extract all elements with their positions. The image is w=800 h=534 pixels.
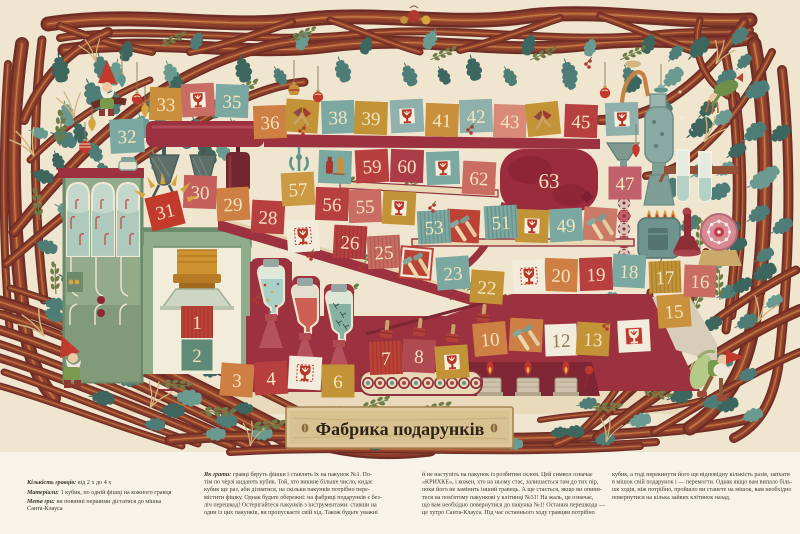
svg-text:33: 33 (156, 95, 176, 117)
svg-text:повернутися на кілька зайвих к: повернутися на кілька зайвих клітинок на… (612, 494, 731, 501)
svg-text:63: 63 (539, 169, 560, 193)
svg-text:це хутро Санта-Клауса. Під час: це хутро Санта-Клауса. Під час останньог… (422, 509, 595, 516)
svg-text:Мета гри: ви повинні першими д: Мета гри: ви повинні першими дістатися д… (26, 499, 161, 505)
svg-text:22: 22 (477, 277, 497, 299)
svg-text:містити фішку. Однак будьте об: містити фішку. Однак будьте обережні: на… (204, 494, 382, 501)
svg-text:56: 56 (322, 195, 342, 217)
svg-text:2: 2 (192, 346, 202, 367)
svg-text:23: 23 (443, 263, 463, 285)
svg-text:38: 38 (328, 108, 348, 130)
svg-text:13: 13 (583, 330, 603, 352)
svg-text:41: 41 (432, 111, 452, 133)
svg-text:6: 6 (333, 372, 343, 393)
svg-text:51: 51 (491, 213, 511, 235)
svg-text:39: 39 (361, 109, 381, 131)
svg-text:35: 35 (222, 92, 242, 114)
svg-text:4: 4 (266, 369, 277, 390)
svg-text:29: 29 (223, 195, 243, 217)
svg-text:16: 16 (690, 272, 710, 294)
svg-text:Матеріали: 1 кубик, по одній ф: Матеріали: 1 кубик, по одній фішці на ко… (26, 489, 172, 496)
svg-text:49: 49 (556, 216, 576, 238)
svg-text:8: 8 (414, 347, 425, 368)
svg-text:теся на пом'ятому пакункові у: теся на пом'ятому пакункові у клітинці №… (422, 495, 594, 501)
svg-text:17: 17 (655, 268, 675, 290)
svg-text:55: 55 (355, 197, 375, 219)
svg-text:Як грати: гравці беруть фішки: Як грати: гравці беруть фішки і ставлять… (203, 471, 372, 478)
svg-text:Фабрика подарунків: Фабрика подарунків (316, 419, 485, 439)
svg-text:кубик ще раз, аби дізнатися, н: кубик ще раз, аби дізнатися, на скільки … (204, 486, 370, 493)
svg-text:поки його не замінить інший гр: поки його не замінить інший гравець. А щ… (422, 486, 602, 493)
svg-text:45: 45 (571, 112, 591, 134)
svg-text:32: 32 (117, 127, 137, 149)
svg-text:що вам необхідно повернутися д: що вам необхідно повернутися до пакунка … (422, 501, 606, 508)
svg-text:тім по черзі кидають кубик. То: тім по черзі кидають кубик. Той, хто вик… (204, 479, 373, 486)
svg-text:18: 18 (619, 262, 639, 284)
svg-text:53: 53 (424, 218, 444, 240)
svg-text:ше ходів, ніж потрібно, пройшл: ше ходів, ніж потрібно, пройшло ви стане… (612, 486, 791, 493)
svg-text:25: 25 (374, 243, 394, 265)
svg-text:15: 15 (664, 301, 684, 323)
svg-text:3: 3 (231, 371, 242, 393)
svg-text:36: 36 (260, 113, 280, 135)
svg-text:«КРИХКЕ», і кожен, хто на ньом: «КРИХКЕ», і кожен, хто на ньому стає, за… (422, 480, 599, 486)
svg-text:57: 57 (288, 180, 308, 202)
svg-text:42: 42 (466, 107, 486, 129)
svg-text:12: 12 (551, 331, 571, 353)
svg-text:62: 62 (469, 169, 489, 191)
svg-text:й не наступіть на пакунок із р: й не наступіть на пакунок із розбитим ск… (422, 471, 593, 478)
svg-text:26: 26 (340, 233, 360, 255)
svg-text:10: 10 (480, 329, 501, 352)
svg-text:Кількість гравців: від 2 х до: Кількість гравців: від 2 х до 4 х (26, 480, 111, 486)
svg-text:ліч перешкод! Остерігайтеся па: ліч перешкод! Остерігайтеся пакунків з і… (204, 501, 377, 508)
svg-text:20: 20 (551, 266, 571, 288)
svg-text:60: 60 (397, 157, 417, 179)
svg-text:59: 59 (362, 157, 382, 179)
svg-text:47: 47 (616, 174, 635, 195)
svg-text:1: 1 (192, 313, 202, 334)
svg-text:28: 28 (258, 208, 278, 230)
svg-text:30: 30 (190, 183, 210, 205)
svg-text:19: 19 (586, 265, 606, 287)
svg-text:один із цих пакунків, ви пропу: один із цих пакунків, ви пропускаєте сві… (204, 509, 378, 516)
svg-text:Санта-Клауса: Санта-Клауса (27, 506, 63, 512)
svg-text:в мішок свій подарунок і — пер: в мішок свій подарунок і — перемогти. Од… (612, 479, 792, 486)
svg-text:7: 7 (381, 349, 391, 370)
svg-text:43: 43 (500, 112, 520, 134)
svg-text:кубик, а тоді перекинути його: кубик, а тоді перекинути його ще відпові… (612, 471, 791, 478)
